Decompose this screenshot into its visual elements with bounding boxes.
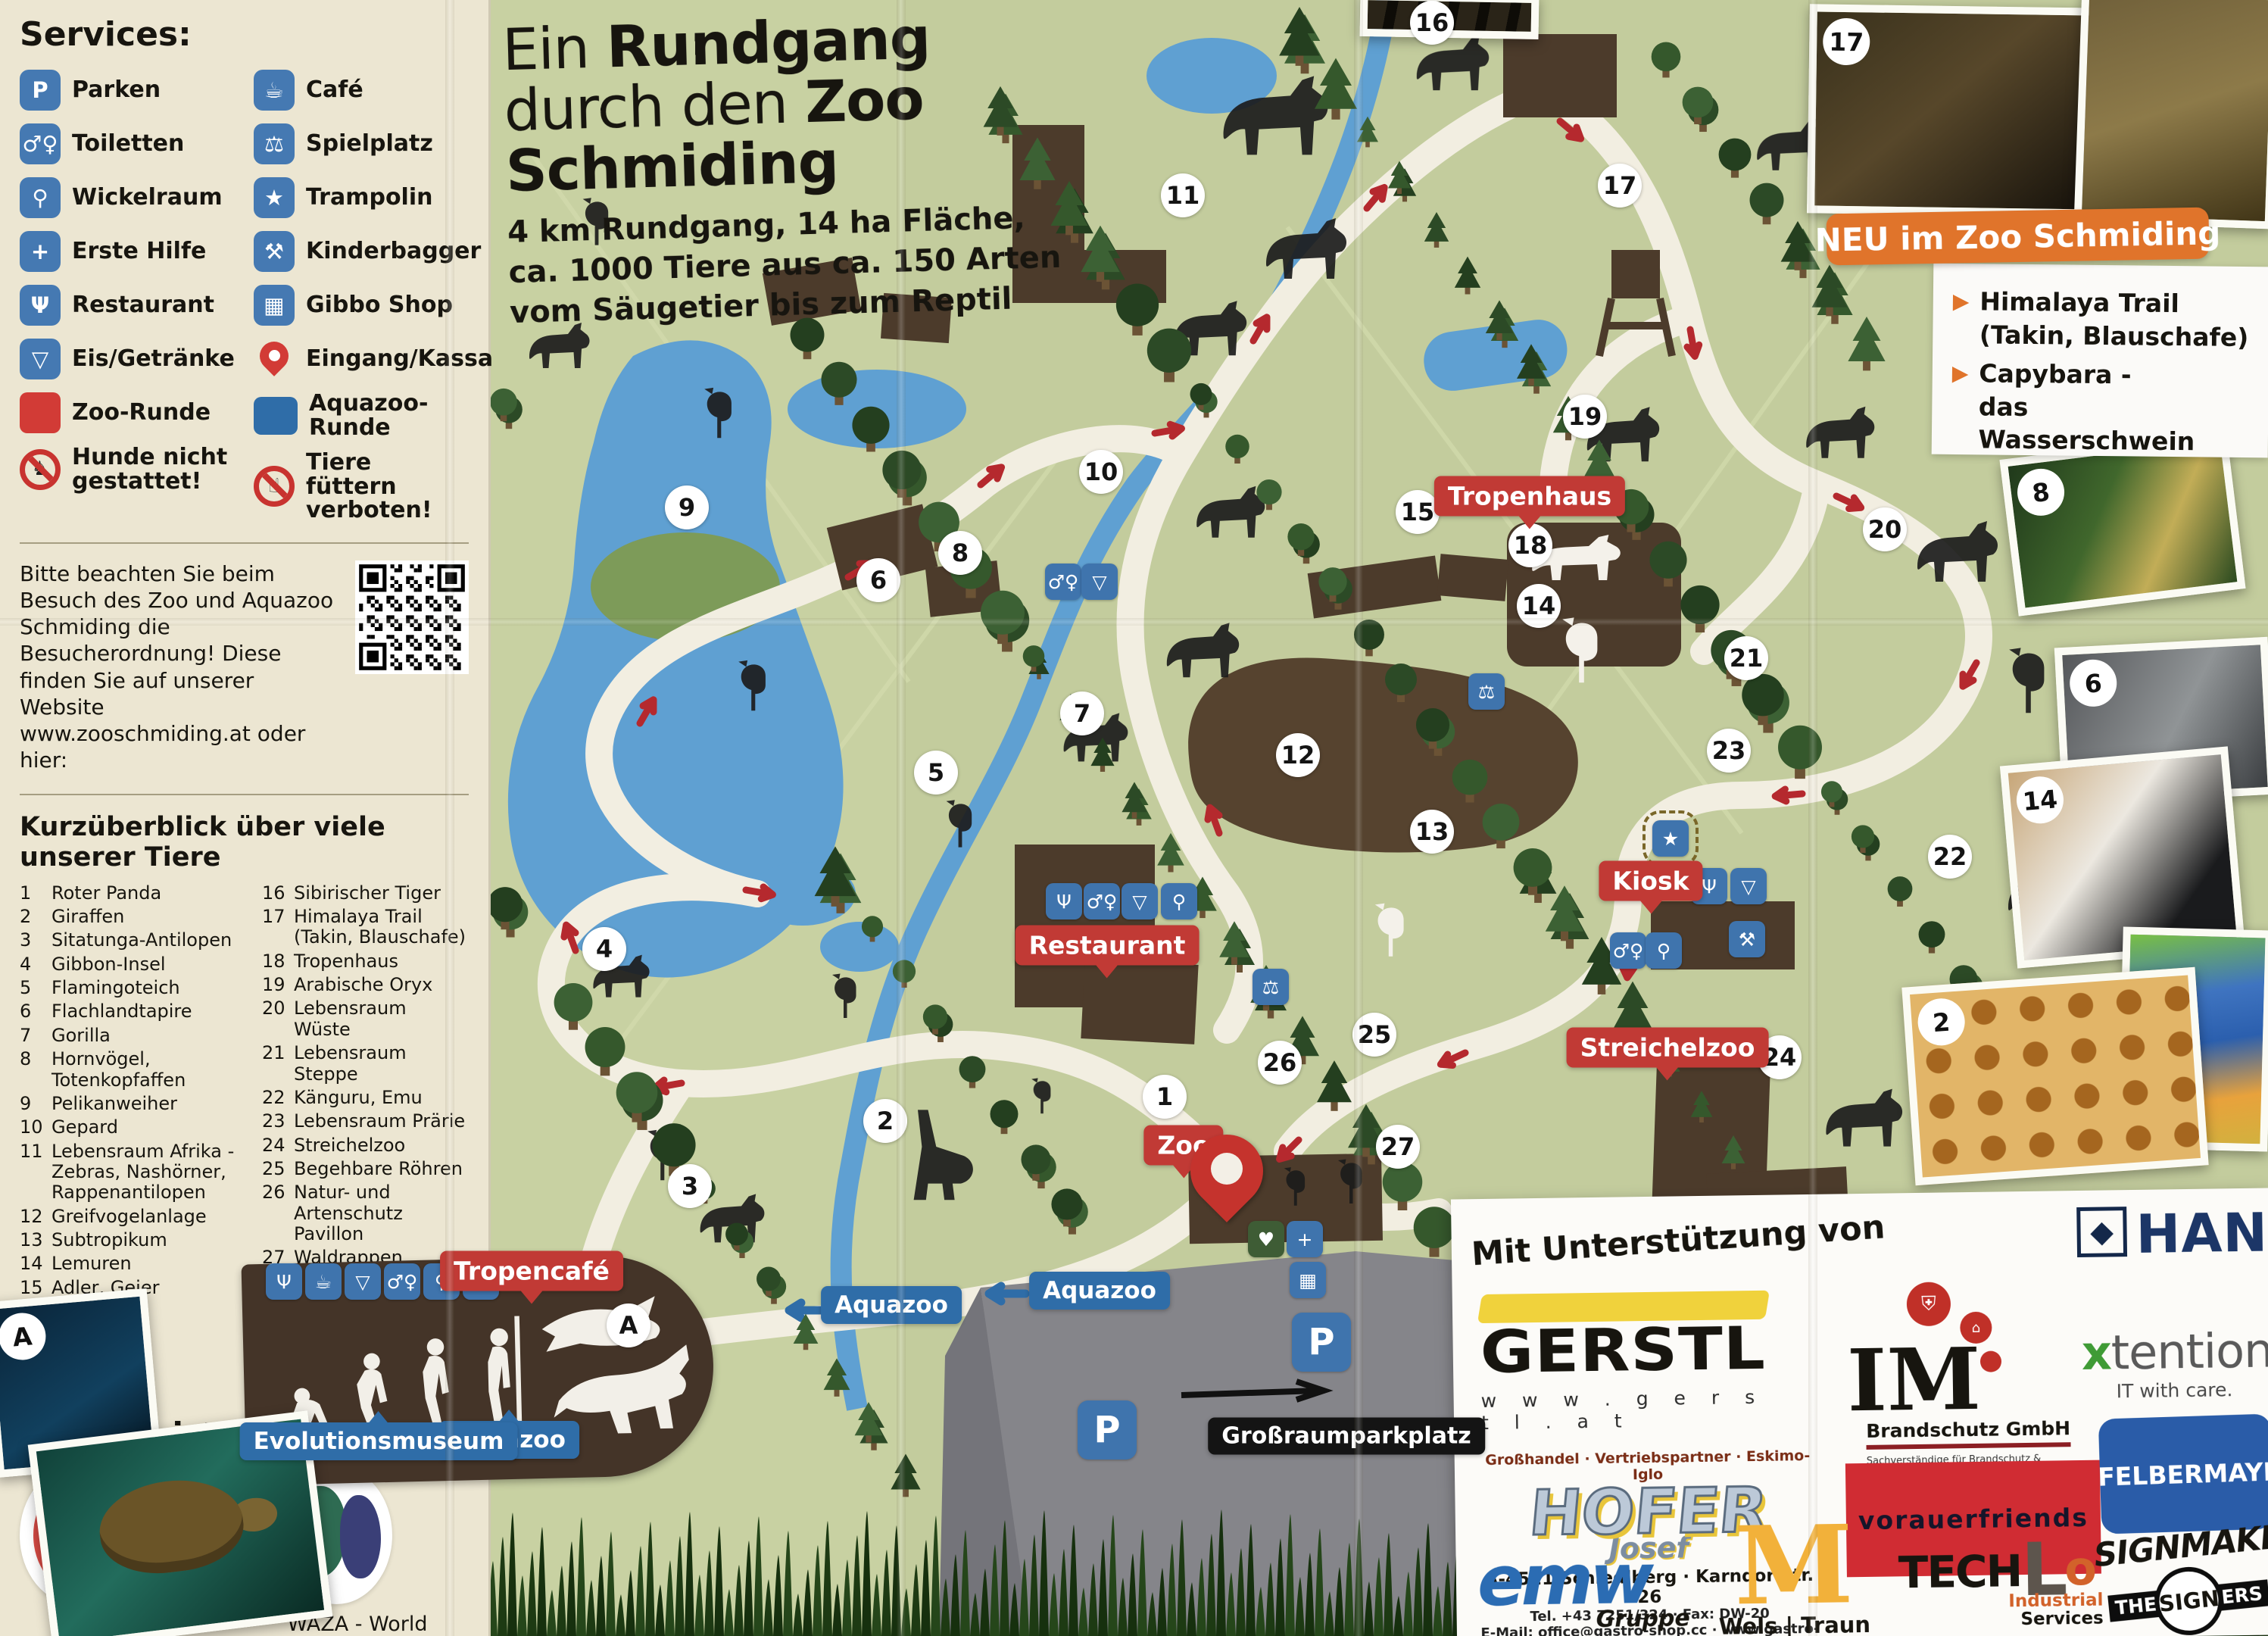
defibrillator-icon: ♥	[1248, 1221, 1284, 1257]
sponsor-panel: Mit Unterstützung von GERSTL w w w . g e…	[1451, 1188, 2268, 1636]
service-item: ▦ Gibbo Shop	[254, 284, 469, 326]
toilets-icon: ♂♀	[1610, 932, 1646, 969]
service-label: Tiere füttern verboten!	[306, 451, 469, 523]
map-marker: 5	[914, 751, 958, 795]
felbermayr-logo: FELBERMAYR	[2098, 1414, 2268, 1535]
gift-shop-icon: ▦	[1290, 1262, 1326, 1298]
map-marker: 22	[1928, 835, 1972, 879]
sponsor-heading: Mit Unterstützung von	[1471, 1208, 1886, 1273]
map-marker: 9	[665, 485, 709, 529]
map-label-blue: Aquazoo	[821, 1286, 962, 1324]
factory-icon: ⌂	[1960, 1312, 1992, 1344]
extinguisher-icon: ⛨	[1907, 1282, 1951, 1326]
map-marker: 20	[1863, 507, 1907, 551]
giraffe-photo: 2	[1901, 967, 2208, 1185]
service-label: Eingang/Kassa	[306, 347, 493, 371]
entrance-pin-icon	[1190, 1135, 1263, 1207]
service-label: Spielplatz	[306, 132, 433, 156]
list-item: 21 Lebensraum Steppe	[262, 1043, 468, 1085]
list-item: 6 Flachlandtapire	[20, 1001, 253, 1022]
service-label: Eis/Getränke	[72, 347, 235, 371]
map-marker: 16	[1410, 1, 1454, 45]
list-item: 22 Känguru, Emu	[262, 1088, 468, 1108]
mcdonalds-logo: M Wels | Traun	[1710, 1521, 1878, 1636]
service-label: Parken	[72, 78, 161, 102]
map-marker: 13	[1410, 810, 1454, 854]
map-marker: 11	[1161, 173, 1205, 217]
list-item: 10 Gepard	[20, 1117, 253, 1138]
parking-icon: P	[1292, 1313, 1351, 1372]
ice-cream-icon: ▽	[1730, 868, 1767, 904]
map-label-red: Tropenhaus	[1434, 476, 1625, 517]
map-marker: 4	[582, 927, 626, 971]
photo-badge: 6	[2069, 658, 2118, 707]
service-item: ⚲ Wickelraum	[20, 176, 246, 219]
service-label: Hunde nicht gestattet!	[72, 445, 246, 493]
toilets-icon: ♂♀	[384, 1263, 420, 1300]
list-item: 9 Pelikanweiher	[20, 1094, 253, 1114]
baby-change-icon: ⚲	[1161, 883, 1197, 919]
digger-icon: ⚒	[254, 231, 295, 272]
list-item: 26 Natur- und Artenschutz Pavillon	[262, 1182, 468, 1244]
list-item: 12 Greifvogelanlage	[20, 1207, 253, 1227]
hansa-logo: ◆ HANSA WATER SMART LIVING	[2076, 1196, 2268, 1273]
list-item: 24 Streichelzoo	[262, 1135, 468, 1156]
list-item: 11 Lebensraum Afrika - Zebras, Nashörner…	[20, 1141, 253, 1204]
list-item: 5 Flamingoteich	[20, 978, 253, 998]
digger-icon: ⚒	[1729, 921, 1765, 957]
trampoline-icon: ★	[254, 177, 295, 218]
visitor-notice-text: Bitte beachten Sie beim Besuch des Zoo u…	[20, 560, 342, 774]
map-marker: 10	[1079, 450, 1123, 494]
divider	[20, 542, 469, 544]
services-legend: P Parken ♂♀ Toiletten ⚲ Wickelraum + Ers…	[20, 69, 469, 523]
gerstl-logo: GERSTL w w w . g e r s t l . a t	[1480, 1290, 1792, 1433]
list-item: 16 Sibirischer Tiger	[262, 883, 468, 904]
service-item: ♞ Hunde nicht gestattet!	[20, 445, 246, 493]
list-item: 19 Arabische Oryx	[262, 975, 468, 995]
photo-badge: 17	[1823, 18, 1870, 66]
service-label: Trampolin	[306, 186, 432, 210]
trampoline-icon: ★	[1652, 820, 1689, 857]
parking-icon: P	[1078, 1400, 1137, 1460]
list-item: 8 Hornvögel, Totenkopfaffen	[20, 1049, 253, 1091]
restaurant-icon: Ψ	[20, 285, 61, 326]
service-label: Erste Hilfe	[72, 239, 206, 264]
map-label-red: Kiosk	[1599, 861, 1702, 901]
map-marker: 2	[863, 1099, 907, 1143]
overview-heading: Kurzüberblick über viele unserer Tiere	[20, 812, 469, 873]
golden-arches-icon: M	[1710, 1521, 1878, 1611]
photo-badge: 14	[2014, 775, 2065, 826]
toilets-icon: ♂♀	[1084, 883, 1120, 919]
service-item: ☝ Tiere füttern verboten!	[254, 451, 469, 523]
playground-icon: ⚖	[1253, 969, 1289, 1005]
emw-gruppe-logo: emw Gruppe	[1477, 1550, 1705, 1636]
service-label: Wickelraum	[72, 186, 223, 210]
map-marker: 23	[1707, 729, 1751, 773]
parking-icon: P	[20, 70, 61, 111]
service-item: Ψ Restaurant	[20, 284, 246, 326]
visitor-notice: Bitte beachten Sie beim Besuch des Zoo u…	[20, 560, 469, 774]
playground-icon: ⚖	[1468, 673, 1505, 710]
map-label-blue: Aquazoo	[1029, 1272, 1170, 1310]
first-aid-icon: +	[20, 231, 61, 272]
zoo-route-icon	[20, 392, 61, 433]
service-item: Aquazoo-Runde	[254, 392, 469, 439]
list-item: 4 Gibbon-Insel	[20, 954, 253, 975]
service-label: Café	[306, 78, 363, 102]
cafe-icon: ☕	[254, 70, 295, 111]
map-marker: 17	[1598, 164, 1642, 208]
neu-banner: NEU im Zoo Schmiding	[1826, 208, 2209, 266]
service-item: ▽ Eis/Getränke	[20, 338, 246, 380]
map-marker: 3	[668, 1164, 712, 1208]
service-item: P Parken	[20, 69, 246, 111]
photo-badge: A	[0, 1311, 48, 1362]
qr-code	[355, 560, 469, 674]
xtention-logo: xtention IT with care.	[2081, 1323, 2266, 1403]
triangle-bullet-icon: ▶	[1952, 285, 1969, 351]
signmaking-logo: SIGNMAKING THE SIGN ERS	[2092, 1522, 2268, 1636]
service-label: Aquazoo-Runde	[309, 392, 469, 439]
map-marker: 18	[1508, 523, 1552, 567]
neu-box: ▶ Himalaya Trail (Takin, Blauschafe) ▶ C…	[1932, 264, 2268, 458]
ice-cream-icon: ▽	[1122, 883, 1158, 919]
ice-cream-icon: ▽	[20, 339, 61, 379]
map-marker: 21	[1724, 636, 1768, 680]
service-item: ☕ Café	[254, 69, 469, 111]
map-label-black: Großraumparkplatz	[1208, 1418, 1485, 1455]
map-marker: A	[607, 1303, 650, 1347]
im-brandschutz-logo: ⛨⌂ IM Brandschutz GmbH Sachverständige f…	[1846, 1280, 2084, 1478]
baby-change-icon: ⚲	[1646, 932, 1682, 969]
entrance-pin-icon	[254, 339, 295, 379]
page-title: Ein Rundgang durch den Zoo Schmiding 4 k…	[501, 5, 1062, 333]
list-item: 7 Gorilla	[20, 1026, 253, 1046]
subtitle: 4 km Rundgang, 14 ha Fläche,ca. 1000 Tie…	[507, 198, 1062, 333]
gift-shop-icon: ▦	[254, 285, 295, 326]
service-label: Zoo-Runde	[72, 401, 211, 425]
service-label: Gibbo Shop	[306, 293, 453, 317]
list-item: 23 Lebensraum Prärie	[262, 1111, 468, 1132]
takin-photo: 17	[1807, 4, 2104, 217]
techlo-logo: TECHLo IndustrialServices	[1898, 1541, 2104, 1631]
map-marker: 6	[856, 558, 900, 602]
first-aid-icon: +	[1287, 1221, 1323, 1257]
list-item: 25 Begehbare Röhren	[262, 1159, 468, 1179]
map-marker: 8	[938, 531, 982, 575]
photo-badge: 2	[1917, 997, 1967, 1047]
cafe-icon: ☕	[305, 1263, 342, 1300]
map-marker: 19	[1563, 395, 1607, 439]
map-marker: 27	[1376, 1125, 1420, 1169]
map-label-red: Restaurant	[1015, 926, 1200, 966]
map-marker: 1	[1143, 1075, 1187, 1119]
service-item: Eingang/Kassa	[254, 338, 469, 380]
services-heading: Services:	[20, 15, 469, 54]
toilets-icon: ♂♀	[20, 123, 61, 164]
no-feeding-icon: ☝	[254, 466, 295, 507]
list-item: 17 Himalaya Trail (Takin, Blauschafe)	[262, 907, 468, 948]
map-label-blue: Evolutionsmuseum	[240, 1422, 518, 1460]
aquazoo-route-icon	[254, 397, 298, 435]
map-marker: 7	[1060, 692, 1104, 735]
map-label-red: Streichelzoo	[1567, 1028, 1769, 1068]
map-marker: 25	[1352, 1013, 1396, 1057]
service-item: ★ Trampolin	[254, 176, 469, 219]
squirrel-monkeys-photo: 8	[1999, 432, 2245, 616]
ice-cream-icon: ▽	[1081, 564, 1118, 600]
restaurant-icon: Ψ	[266, 1263, 302, 1300]
service-item: ⚖ Spielplatz	[254, 123, 469, 165]
list-item: 3 Sitatunga-Antilopen	[20, 930, 253, 951]
list-item: 2 Giraffen	[20, 907, 253, 927]
toilets-icon: ♂♀	[1045, 564, 1081, 600]
list-item: 20 Lebensraum Wüste	[262, 998, 468, 1040]
hansa-mark-icon: ◆	[2076, 1207, 2127, 1257]
no-dogs-icon: ♞	[20, 449, 61, 490]
restaurant-icon: Ψ	[1046, 883, 1082, 919]
map-marker: 15	[1396, 490, 1440, 534]
service-item: Zoo-Runde	[20, 392, 246, 434]
list-item: 13 Subtropikum	[20, 1230, 253, 1250]
neu-item: ▶ Capybara - das Wasserschwein	[1951, 357, 2249, 459]
list-item: 14 Lemuren	[20, 1254, 253, 1274]
baby-change-icon: ⚲	[20, 177, 61, 218]
capybara-photo	[2074, 0, 2268, 229]
map-label-red: Tropencafé	[440, 1251, 623, 1291]
list-item: 1 Roter Panda	[20, 883, 253, 904]
list-item: 18 Tropenhaus	[262, 951, 468, 972]
playground-icon: ⚖	[254, 123, 295, 164]
map-marker: 26	[1258, 1041, 1302, 1085]
triangle-bullet-icon: ▶	[1951, 357, 1969, 456]
service-label: Kinderbagger	[306, 239, 481, 264]
service-label: Restaurant	[72, 293, 214, 317]
service-item: ♂♀ Toiletten	[20, 123, 246, 165]
service-label: Toiletten	[72, 132, 184, 156]
map-marker: 14	[1517, 584, 1561, 628]
zoo-schmiding-map-leaflet: Services: P Parken ♂♀ Toiletten ⚲ Wickel…	[0, 0, 2268, 1636]
service-item: + Erste Hilfe	[20, 230, 246, 273]
service-item: ⚒ Kinderbagger	[254, 230, 469, 273]
divider	[20, 794, 469, 795]
map-marker: 12	[1276, 733, 1320, 777]
photo-badge: 8	[2015, 466, 2067, 518]
ice-cream-icon: ▽	[345, 1263, 381, 1300]
neu-item: ▶ Himalaya Trail (Takin, Blauschafe)	[1952, 285, 2250, 354]
